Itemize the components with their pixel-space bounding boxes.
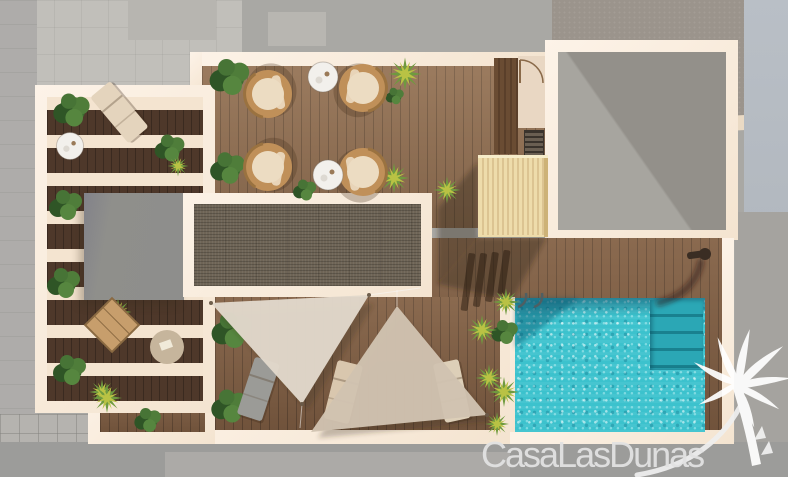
door-room [518,56,545,128]
lower-roof-ne [558,52,726,230]
wall-terrace-top [190,52,545,66]
swimming-pool [515,298,705,432]
watermark-brand-text: CasaLasDunas [481,434,703,476]
neighbour-roof-right [744,0,788,230]
skylight-panel [194,204,421,286]
render-canvas: CasaLasDunas [0,0,788,477]
side-pavement-left [0,0,37,477]
pavement-right [735,212,788,477]
neighbour-roof-tile [128,0,216,40]
door-wood-strip [494,58,518,154]
neighbour-roof-tile [268,12,326,46]
sail-deck [215,297,500,430]
vent-grate [524,130,544,156]
lower-roof-gray-box [84,193,184,300]
wall-east [720,238,734,444]
street-light-patch [165,452,510,477]
pool-steps [650,300,703,370]
